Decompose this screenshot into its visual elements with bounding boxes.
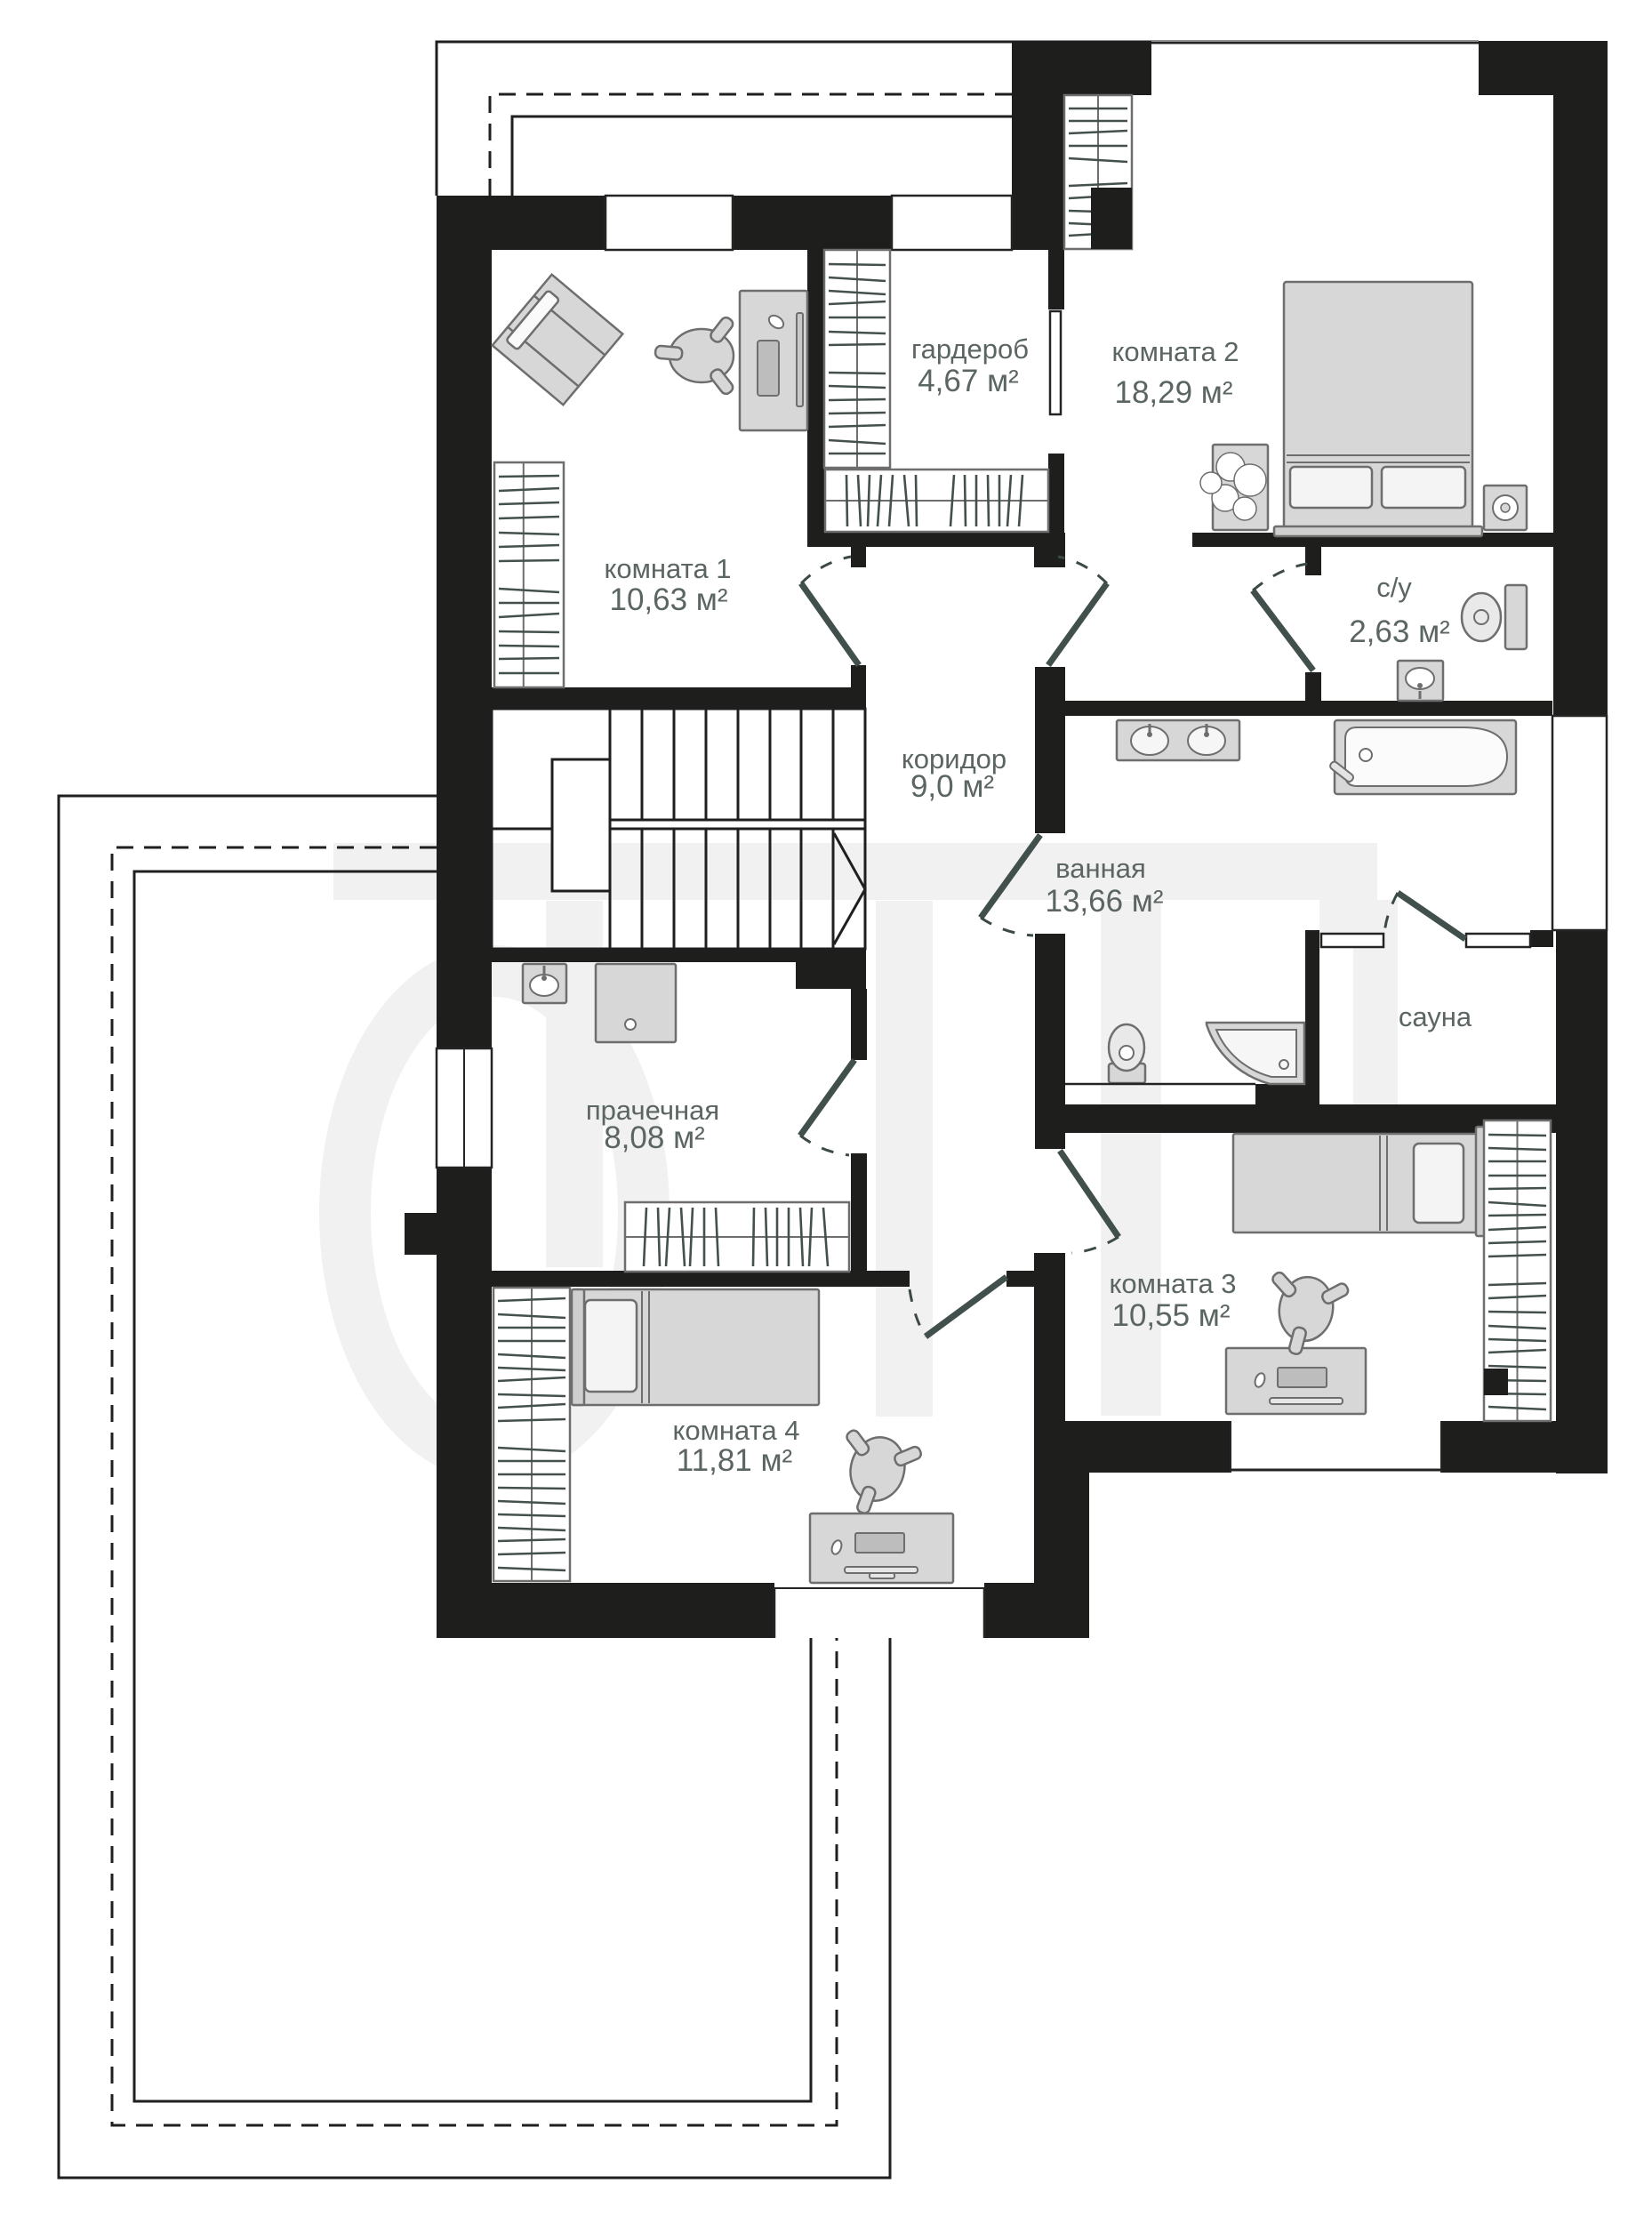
svg-text:13,66 м²: 13,66 м² [1045,884,1163,919]
svg-text:комната 1: комната 1 [604,553,731,584]
svg-text:ванная: ванная [1055,853,1146,884]
svg-text:9,0 м²: 9,0 м² [910,769,994,804]
svg-text:комната 3: комната 3 [1109,1268,1236,1299]
svg-text:10,63 м²: 10,63 м² [609,582,727,617]
svg-text:10,55 м²: 10,55 м² [1111,1298,1230,1333]
svg-text:комната 2: комната 2 [1111,336,1239,367]
svg-text:сауна: сауна [1399,1001,1472,1032]
svg-text:2,63 м²: 2,63 м² [1349,614,1450,649]
svg-text:18,29 м²: 18,29 м² [1114,375,1232,410]
svg-text:гардероб: гардероб [911,333,1029,365]
svg-text:11,81 м²: 11,81 м² [677,1443,792,1478]
svg-text:комната 4: комната 4 [672,1415,799,1446]
svg-text:8,08 м²: 8,08 м² [604,1120,705,1155]
svg-text:4,67 м²: 4,67 м² [918,364,1019,398]
svg-text:с/у: с/у [1376,572,1412,603]
